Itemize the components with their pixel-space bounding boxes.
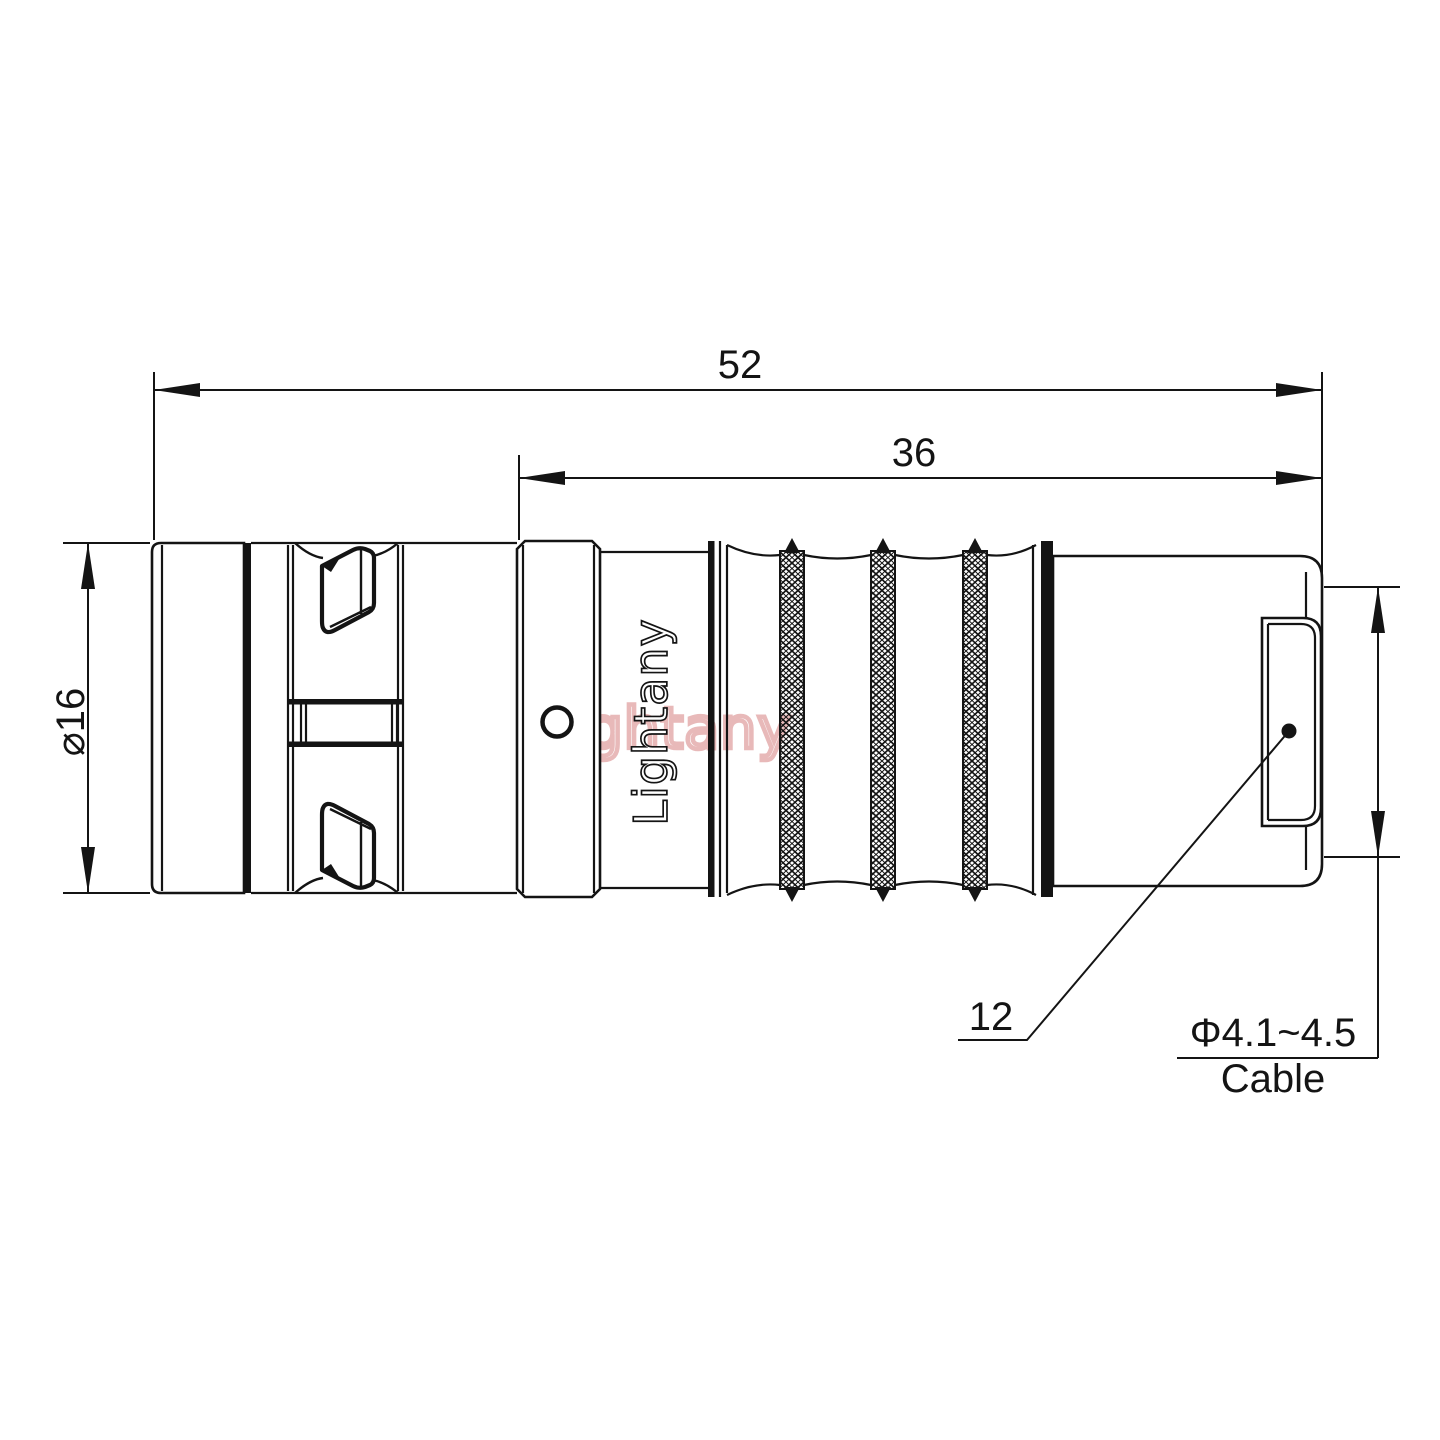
vent-hole xyxy=(543,708,572,737)
dim-label-overall-length: 52 xyxy=(718,343,763,387)
dimension-diameter: ⌀16 xyxy=(49,543,150,893)
bayonet-lug-bottom xyxy=(295,804,398,893)
rear-separator-band xyxy=(1041,541,1053,897)
bayonet-housing xyxy=(287,543,404,893)
nut-separator-band xyxy=(244,543,251,893)
dim-label-cable-word: Cable xyxy=(1221,1057,1326,1101)
knurl-band-2 xyxy=(871,538,895,902)
dim-label-rear-length: 36 xyxy=(892,431,937,475)
dimension-overall-length: 52 xyxy=(154,343,1322,580)
dimension-rear-length: 36 xyxy=(519,431,1322,540)
strain-relief-boot xyxy=(1262,618,1321,826)
coupling-nut xyxy=(152,543,251,893)
dim-label-boot-width: 12 xyxy=(969,995,1014,1039)
knurl-band-3 xyxy=(963,538,987,902)
brand-marking: Lightany xyxy=(624,618,678,825)
connector-technical-drawing: Lightany xyxy=(0,0,1440,1440)
dim-label-diameter: ⌀16 xyxy=(49,688,93,757)
collar-ring xyxy=(517,541,600,897)
bayonet-lug-top xyxy=(295,543,398,632)
knurl-band-1 xyxy=(780,538,804,902)
dim-label-cable-spec: Φ4.1~4.5 xyxy=(1190,1011,1356,1055)
cable-end xyxy=(1053,556,1322,886)
